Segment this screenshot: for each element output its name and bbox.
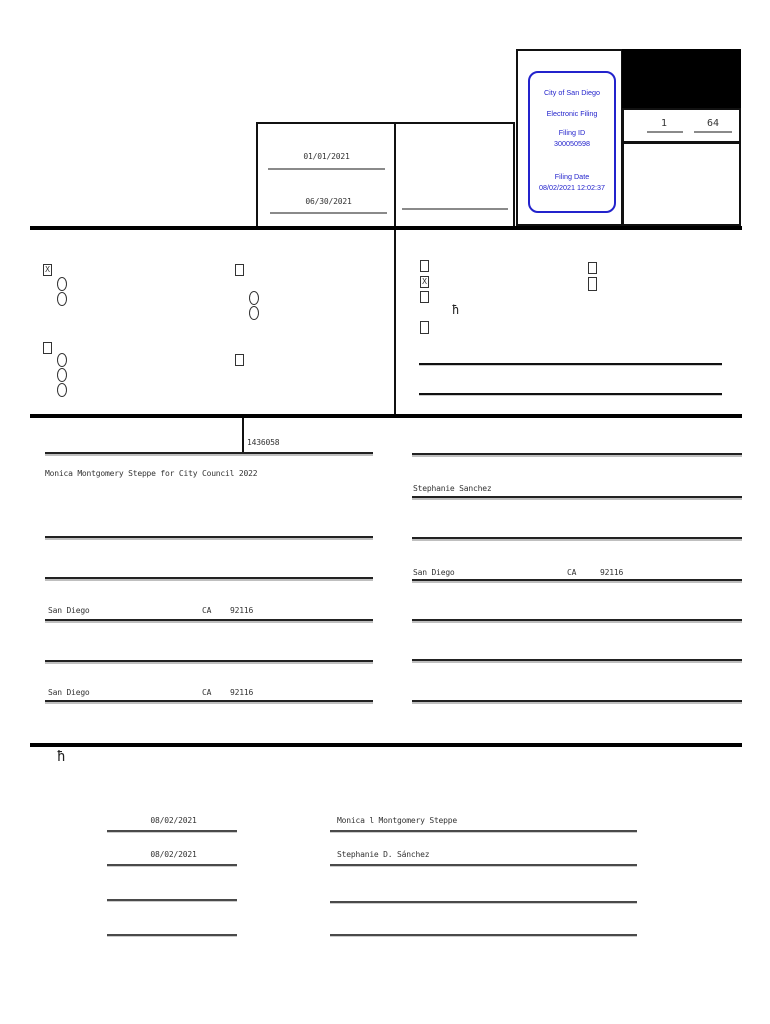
field-line-left-1: [45, 536, 373, 538]
right-city: San Diego: [413, 568, 455, 578]
field-line-right-6: [412, 700, 742, 702]
left-city-1: San Diego: [48, 606, 90, 616]
page-total: 64: [694, 118, 732, 129]
radio-circle-b1: [57, 353, 67, 367]
signature-name-1: Monica l Montgomery Steppe: [337, 816, 457, 826]
field-line-left-3: [45, 619, 373, 621]
filed-form-page: 01/01/2021 06/30/2021 City of San Diego …: [0, 0, 770, 1024]
checkbox-left-a: X: [43, 264, 52, 276]
stamp-filing-date-label: Filing Date: [532, 172, 613, 181]
field-line-left-4: [45, 660, 373, 662]
stamp-filing-id: 300050598: [532, 139, 613, 148]
id-number: 1436058: [247, 438, 279, 448]
radio-circle-a1: [57, 277, 67, 291]
footnote-marker-bottom: ħ: [57, 749, 65, 765]
signature-name-line-1: [330, 830, 637, 832]
field-line-right-4: [412, 619, 742, 621]
left-city-2: San Diego: [48, 688, 90, 698]
signature-date-line-4: [107, 934, 237, 936]
stamp-org: City of San Diego: [532, 88, 613, 97]
page-number-underline: [647, 131, 683, 133]
blank-line-right-1: [419, 363, 722, 365]
checkbox-right-e3: [420, 291, 429, 303]
right-zip: 92116: [600, 568, 623, 578]
signature-name-line-2: [330, 864, 637, 866]
signature-name-line-4: [330, 934, 637, 936]
field-line-right-1: [412, 496, 742, 498]
radio-circle-a2: [57, 292, 67, 306]
section-divider-2: [30, 414, 742, 418]
field-line-right-0: [412, 453, 742, 455]
section-divider-3: [30, 743, 742, 747]
section-divider-1: [30, 226, 742, 230]
checkbox-mid-d: [235, 354, 244, 366]
empty-header-box: [622, 142, 741, 226]
signature-date-line-3: [107, 899, 237, 901]
signature-name-2: Stephanie D. Sánchez: [337, 850, 429, 860]
radio-circle-b2: [57, 368, 67, 382]
field-line-right-2: [412, 537, 742, 539]
checkbox-right-f2: [588, 277, 597, 291]
blank-line-right-2: [419, 393, 722, 395]
period-through-underline: [270, 212, 387, 214]
footnote-marker-mid: ħ: [452, 303, 459, 317]
radio-circle-c2: [249, 306, 259, 320]
committee-name: Monica Montgomery Steppe for City Counci…: [45, 469, 257, 479]
stamp-filing-id-label: Filing ID: [532, 128, 613, 137]
page-number: 1: [645, 118, 683, 129]
checkbox-right-e4: [420, 321, 429, 334]
signature-name-line-3: [330, 901, 637, 903]
field-line-right-5: [412, 659, 742, 661]
stamp-filing-datetime: 08/02/2021 12:02:37: [532, 183, 613, 192]
radio-circle-b3: [57, 383, 67, 397]
field-line-left-2: [45, 577, 373, 579]
checkbox-right-e1: [420, 260, 429, 272]
checkbox-right-f1: [588, 262, 597, 274]
field-line-left-5: [45, 700, 373, 702]
checkbox-left-b: [43, 342, 52, 354]
signature-date-line-1: [107, 830, 237, 832]
period-through-date: 06/30/2021: [270, 197, 387, 207]
checkbox-right-e2: X: [420, 276, 429, 288]
black-header-box: [622, 49, 741, 108]
radio-circle-c1: [249, 291, 259, 305]
id-cell-divider: [242, 418, 244, 454]
left-zip-2: 92116: [230, 688, 253, 698]
period-from-date: 01/01/2021: [268, 152, 385, 162]
right-state: CA: [567, 568, 576, 578]
left-zip-1: 92116: [230, 606, 253, 616]
left-state-2: CA: [202, 688, 211, 698]
checkbox-section-divider: [394, 230, 396, 416]
field-line-right-3: [412, 579, 742, 581]
field-line-left-0: [45, 452, 373, 454]
page-total-underline: [694, 131, 732, 133]
period-right-blank-line: [402, 208, 508, 210]
period-from-underline: [268, 168, 385, 170]
electronic-filing-stamp: City of San Diego Electronic Filing Fili…: [528, 71, 616, 213]
period-box-divider: [394, 122, 396, 228]
checkbox-mid-c: [235, 264, 244, 276]
signature-date-line-2: [107, 864, 237, 866]
signature-date-1: 08/02/2021: [110, 816, 237, 826]
treasurer-name: Stephanie Sanchez: [413, 484, 491, 494]
left-state-1: CA: [202, 606, 211, 616]
stamp-kind: Electronic Filing: [532, 109, 613, 118]
signature-date-2: 08/02/2021: [110, 850, 237, 860]
